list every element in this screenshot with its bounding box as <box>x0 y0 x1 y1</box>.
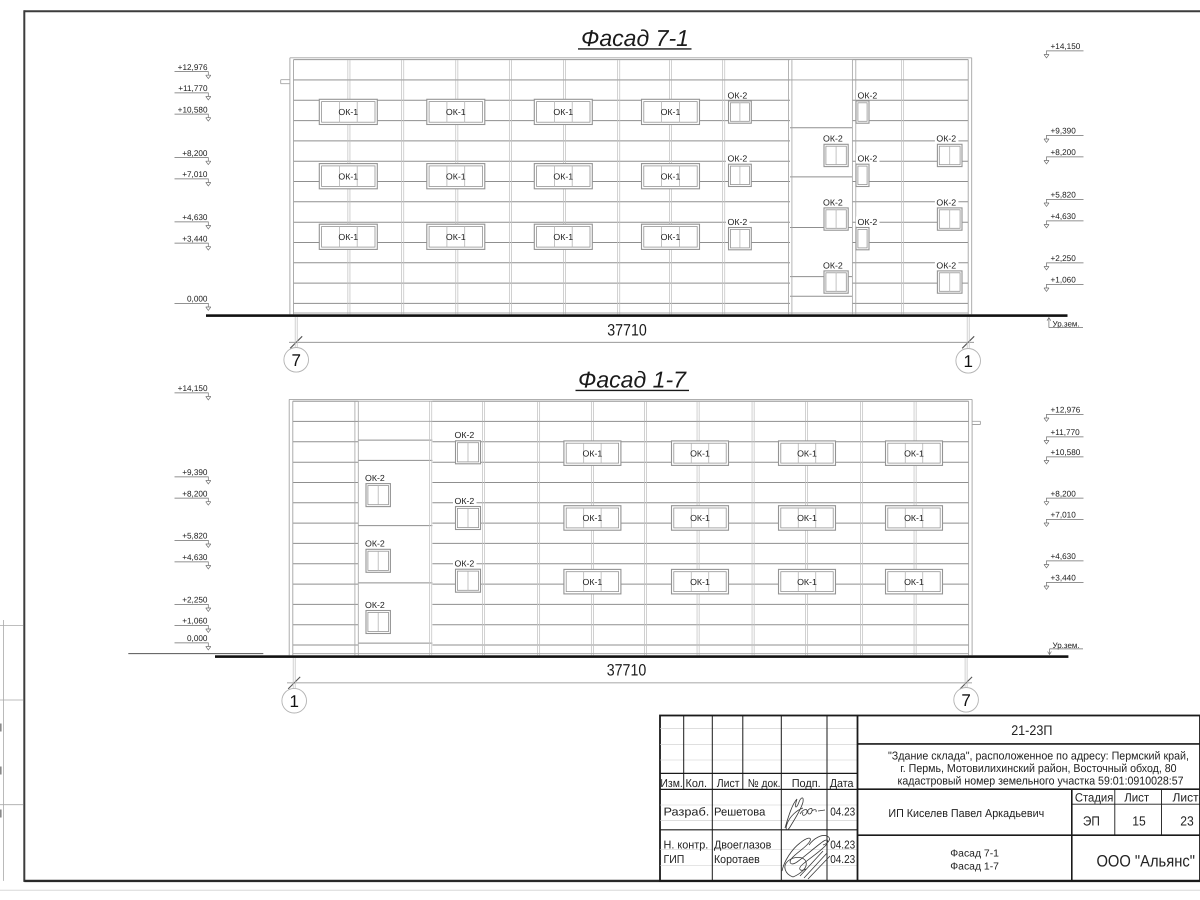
svg-text:Дата: Дата <box>830 778 854 790</box>
svg-text:Фасад 1-7: Фасад 1-7 <box>950 862 999 873</box>
svg-text:+10,580: +10,580 <box>178 105 208 114</box>
svg-text:+8,200: +8,200 <box>1051 148 1077 157</box>
svg-text:ОК-2: ОК-2 <box>936 134 956 144</box>
svg-text:+8,200: +8,200 <box>182 149 208 158</box>
svg-text:ОК-1: ОК-1 <box>904 577 924 587</box>
svg-text:ОК-2: ОК-2 <box>365 539 385 549</box>
svg-text:+9,390: +9,390 <box>1051 127 1077 136</box>
svg-text:+4,630: +4,630 <box>1051 552 1077 561</box>
svg-text:+11,770: +11,770 <box>1051 428 1081 437</box>
svg-text:04.23: 04.23 <box>830 839 855 851</box>
svg-text:ОК-1: ОК-1 <box>904 448 924 458</box>
svg-text:ОК-1: ОК-1 <box>690 448 710 458</box>
svg-text:ОК-1: ОК-1 <box>583 448 603 458</box>
svg-text:Лист: Лист <box>717 778 740 790</box>
svg-text:кадастровый номер земельного у: кадастровый номер земельного участка 59:… <box>898 775 1184 787</box>
svg-text:+4,630: +4,630 <box>182 553 208 562</box>
svg-text:Листов: Листов <box>1173 790 1200 804</box>
svg-text:№ док.: № док. <box>748 778 781 790</box>
svg-text:ОК-1: ОК-1 <box>690 513 710 523</box>
svg-text:ОК-2: ОК-2 <box>858 90 878 100</box>
svg-text:+8,200: +8,200 <box>1051 489 1077 498</box>
svg-text:ОК-2: ОК-2 <box>858 154 878 164</box>
svg-text:Двоеглазов: Двоеглазов <box>714 839 771 851</box>
svg-text:+1,060: +1,060 <box>1051 276 1077 285</box>
svg-text:ОК-1: ОК-1 <box>338 232 358 242</box>
svg-text:ОК-1: ОК-1 <box>797 448 817 458</box>
svg-text:ООО "Альянс": ООО "Альянс" <box>1096 852 1195 870</box>
svg-text:Разраб.: Разраб. <box>664 806 710 818</box>
svg-text:ОК-2: ОК-2 <box>823 197 843 207</box>
svg-text:1: 1 <box>963 352 972 371</box>
svg-text:г. Пермь, Мотовилихинский райо: г. Пермь, Мотовилихинский район, Восточн… <box>900 763 1176 775</box>
svg-text:+11,770: +11,770 <box>178 84 208 93</box>
svg-text:ЭП: ЭП <box>1083 814 1100 829</box>
svg-text:ОК-2: ОК-2 <box>823 260 843 270</box>
svg-text:ОК-1: ОК-1 <box>661 232 681 242</box>
svg-text:+14,150: +14,150 <box>1051 42 1081 51</box>
svg-text:Кол.: Кол. <box>686 778 708 790</box>
svg-text:ОК-2: ОК-2 <box>936 260 956 270</box>
svg-text:21-23П: 21-23П <box>1011 722 1052 738</box>
svg-text:ОК-1: ОК-1 <box>553 171 573 181</box>
svg-text:+2,250: +2,250 <box>182 596 208 605</box>
svg-text:ИП Киселев Павел Аркадьевич: ИП Киселев Павел Аркадьевич <box>888 808 1044 820</box>
svg-text:1: 1 <box>289 692 298 711</box>
svg-text:23: 23 <box>1180 814 1194 829</box>
svg-text:ОК-2: ОК-2 <box>823 134 843 144</box>
svg-text:+1,060: +1,060 <box>182 617 208 626</box>
svg-text:ОК-2: ОК-2 <box>936 197 956 207</box>
svg-text:+7,010: +7,010 <box>182 170 208 179</box>
svg-text:+3,440: +3,440 <box>182 234 208 243</box>
svg-text:+4,630: +4,630 <box>182 213 208 222</box>
svg-text:ОК-2: ОК-2 <box>728 154 748 164</box>
svg-text:Подп.: Подп. <box>792 778 821 790</box>
svg-text:+4,630: +4,630 <box>1051 212 1077 221</box>
svg-text:ОК-1: ОК-1 <box>797 577 817 587</box>
svg-text:ОК-2: ОК-2 <box>728 90 748 100</box>
svg-text:ОК-1: ОК-1 <box>661 107 681 117</box>
svg-text:Фасад 7-1: Фасад 7-1 <box>950 849 999 860</box>
svg-text:ОК-1: ОК-1 <box>797 513 817 523</box>
svg-text:+5,820: +5,820 <box>182 532 208 541</box>
svg-text:+3,440: +3,440 <box>1051 574 1077 583</box>
svg-text:ОК-1: ОК-1 <box>553 232 573 242</box>
svg-text:Фасад 1-7: Фасад 1-7 <box>578 366 687 392</box>
svg-text:+5,820: +5,820 <box>1051 191 1077 200</box>
svg-text:+10,580: +10,580 <box>1051 448 1081 457</box>
svg-text:+2,250: +2,250 <box>1051 254 1077 263</box>
svg-text:Изм.: Изм. <box>660 778 682 790</box>
svg-text:Решетова: Решетова <box>714 806 766 818</box>
svg-text:+12,976: +12,976 <box>1051 406 1081 415</box>
svg-text:ОК-1: ОК-1 <box>446 171 466 181</box>
svg-text:04.23: 04.23 <box>830 806 855 818</box>
svg-text:ОК-1: ОК-1 <box>338 107 358 117</box>
svg-text:"Здание склада", расположенное: "Здание склада", расположенное по адресу… <box>888 751 1189 763</box>
svg-text:ОК-1: ОК-1 <box>583 513 603 523</box>
svg-text:+14,150: +14,150 <box>178 384 208 393</box>
svg-text:Стадия: Стадия <box>1075 790 1113 804</box>
svg-text:ОК-1: ОК-1 <box>661 171 681 181</box>
svg-text:ОК-2: ОК-2 <box>455 559 475 569</box>
svg-text:ОК-2: ОК-2 <box>365 473 385 483</box>
svg-text:+12,976: +12,976 <box>178 63 208 72</box>
svg-text:ОК-2: ОК-2 <box>858 217 878 227</box>
svg-text:04.23: 04.23 <box>830 854 855 866</box>
svg-text:ОК-2: ОК-2 <box>728 217 748 227</box>
svg-text:Лист: Лист <box>1124 790 1149 804</box>
svg-text:+8,200: +8,200 <box>182 489 208 498</box>
svg-text:ГИП: ГИП <box>664 854 685 866</box>
svg-text:37710: 37710 <box>607 662 647 680</box>
svg-text:+7,010: +7,010 <box>1051 511 1077 520</box>
svg-text:ОК-1: ОК-1 <box>690 577 710 587</box>
svg-text:+9,390: +9,390 <box>182 468 208 477</box>
svg-text:ОК-1: ОК-1 <box>904 513 924 523</box>
svg-text:ОК-1: ОК-1 <box>553 107 573 117</box>
svg-text:Н. контр.: Н. контр. <box>664 839 709 851</box>
svg-text:0,000: 0,000 <box>187 634 208 643</box>
svg-text:Фасад 7-1: Фасад 7-1 <box>581 25 689 51</box>
svg-text:7: 7 <box>291 351 300 370</box>
svg-text:0,000: 0,000 <box>187 295 208 304</box>
svg-text:ОК-2: ОК-2 <box>365 600 385 610</box>
svg-text:37710: 37710 <box>607 322 647 340</box>
svg-text:ОК-2: ОК-2 <box>455 496 475 506</box>
svg-text:ОК-1: ОК-1 <box>446 107 466 117</box>
svg-text:15: 15 <box>1132 814 1146 829</box>
svg-text:ОК-1: ОК-1 <box>446 232 466 242</box>
svg-text:Коротаев: Коротаев <box>714 854 760 866</box>
svg-text:ОК-1: ОК-1 <box>583 577 603 587</box>
svg-text:ОК-1: ОК-1 <box>338 171 358 181</box>
svg-text:ОК-2: ОК-2 <box>455 430 475 440</box>
svg-text:7: 7 <box>961 691 970 710</box>
